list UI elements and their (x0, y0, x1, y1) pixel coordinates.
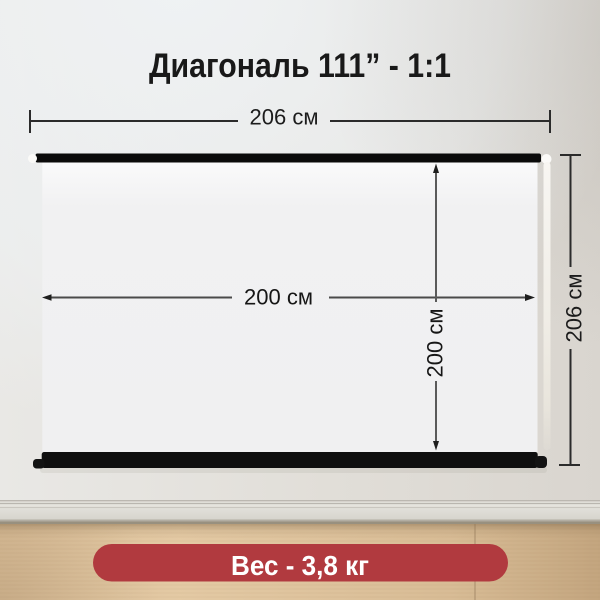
svg-text:206 см: 206 см (250, 105, 319, 130)
svg-text:200 см: 200 см (244, 285, 313, 310)
svg-text:Диагональ 111” - 1:1: Диагональ 111” - 1:1 (149, 47, 451, 85)
svg-text:206 см: 206 см (562, 274, 587, 343)
svg-text:Вес - 3,8 кг: Вес - 3,8 кг (231, 550, 369, 581)
svg-text:200 см: 200 см (422, 309, 447, 378)
